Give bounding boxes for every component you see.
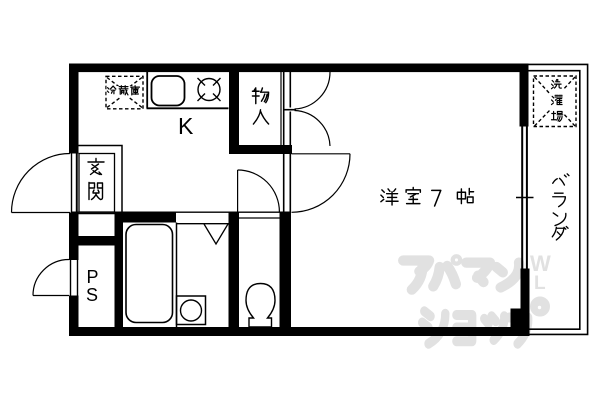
svg-text:L: L: [534, 273, 546, 294]
svg-text:P: P: [87, 267, 99, 287]
svg-text:K: K: [178, 113, 194, 139]
svg-text:S: S: [86, 285, 98, 305]
